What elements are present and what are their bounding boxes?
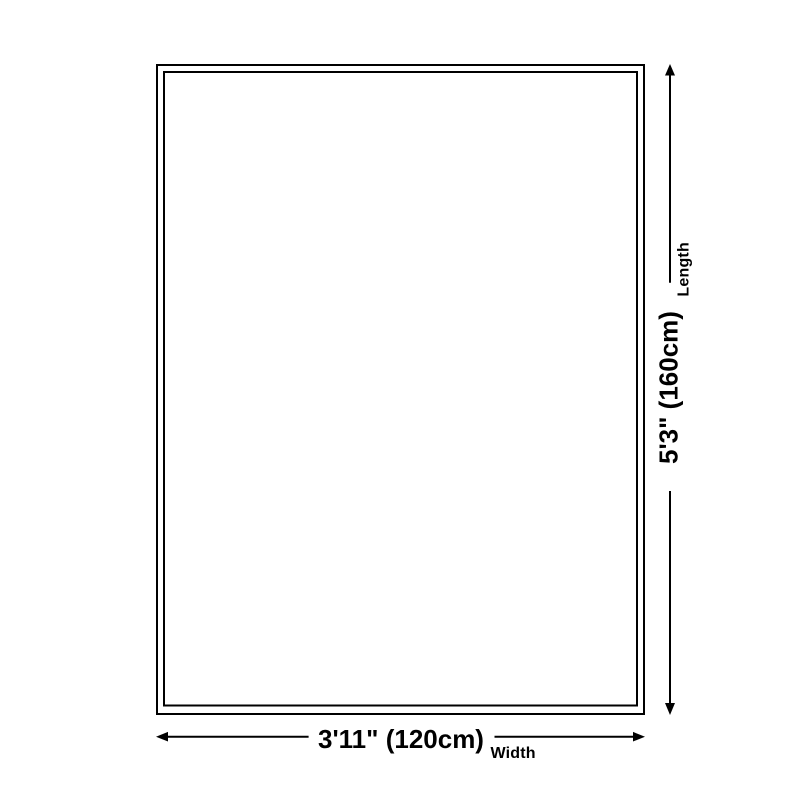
svg-text:Width: Width bbox=[491, 745, 536, 762]
svg-text:Length: Length bbox=[676, 242, 693, 297]
svg-text:5'3" (160cm): 5'3" (160cm) bbox=[654, 311, 684, 464]
svg-text:3'11" (120cm): 3'11" (120cm) bbox=[318, 724, 484, 754]
